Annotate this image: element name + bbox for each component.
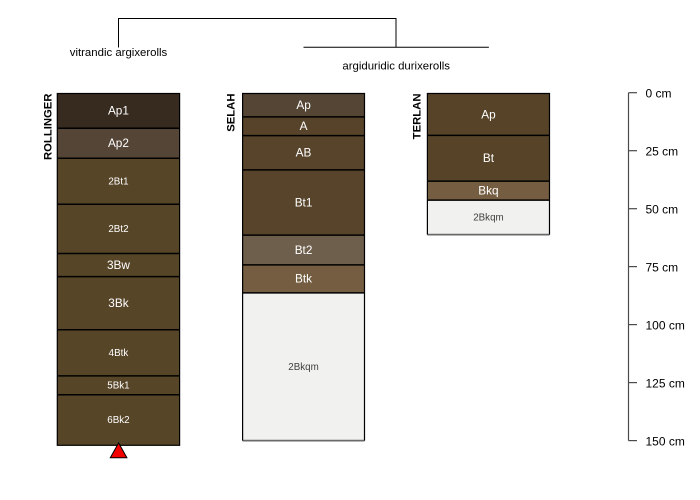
svg-text:50 cm: 50 cm — [646, 202, 679, 216]
svg-text:A: A — [300, 119, 308, 133]
svg-text:25 cm: 25 cm — [646, 144, 679, 158]
svg-text:3Bw: 3Bw — [107, 258, 130, 272]
svg-text:4Btk: 4Btk — [109, 348, 129, 359]
svg-text:Ap: Ap — [481, 107, 496, 121]
svg-text:Ap2: Ap2 — [108, 136, 129, 150]
svg-text:Bt: Bt — [483, 151, 495, 165]
svg-text:2Bkqm: 2Bkqm — [288, 362, 319, 373]
svg-text:150 cm: 150 cm — [646, 434, 685, 448]
svg-text:Ap1: Ap1 — [108, 104, 129, 118]
svg-text:AB: AB — [296, 146, 312, 160]
svg-text:2Bkqm: 2Bkqm — [473, 213, 504, 224]
svg-text:125 cm: 125 cm — [646, 376, 685, 390]
svg-text:0 cm: 0 cm — [646, 86, 672, 100]
svg-text:3Bk: 3Bk — [108, 296, 128, 310]
svg-text:6Bk2: 6Bk2 — [107, 415, 129, 426]
svg-text:100 cm: 100 cm — [646, 318, 685, 332]
svg-text:5Bk1: 5Bk1 — [107, 381, 129, 392]
svg-text:2Bt1: 2Bt1 — [108, 176, 128, 187]
svg-text:argiduridic durixerolls: argiduridic durixerolls — [342, 61, 450, 73]
svg-text:Btk: Btk — [295, 272, 312, 286]
svg-text:TERLAN: TERLAN — [412, 94, 424, 140]
svg-text:Bt2: Bt2 — [295, 243, 313, 257]
svg-text:75 cm: 75 cm — [646, 260, 679, 274]
svg-text:Bkq: Bkq — [478, 183, 498, 197]
svg-text:vitrandic argixerolls: vitrandic argixerolls — [70, 47, 168, 59]
svg-text:2Bt2: 2Bt2 — [108, 224, 128, 235]
svg-text:ROLLINGER: ROLLINGER — [43, 94, 55, 161]
svg-text:Ap: Ap — [296, 98, 311, 112]
svg-text:Bt1: Bt1 — [295, 195, 313, 209]
svg-text:SELAH: SELAH — [226, 94, 238, 132]
